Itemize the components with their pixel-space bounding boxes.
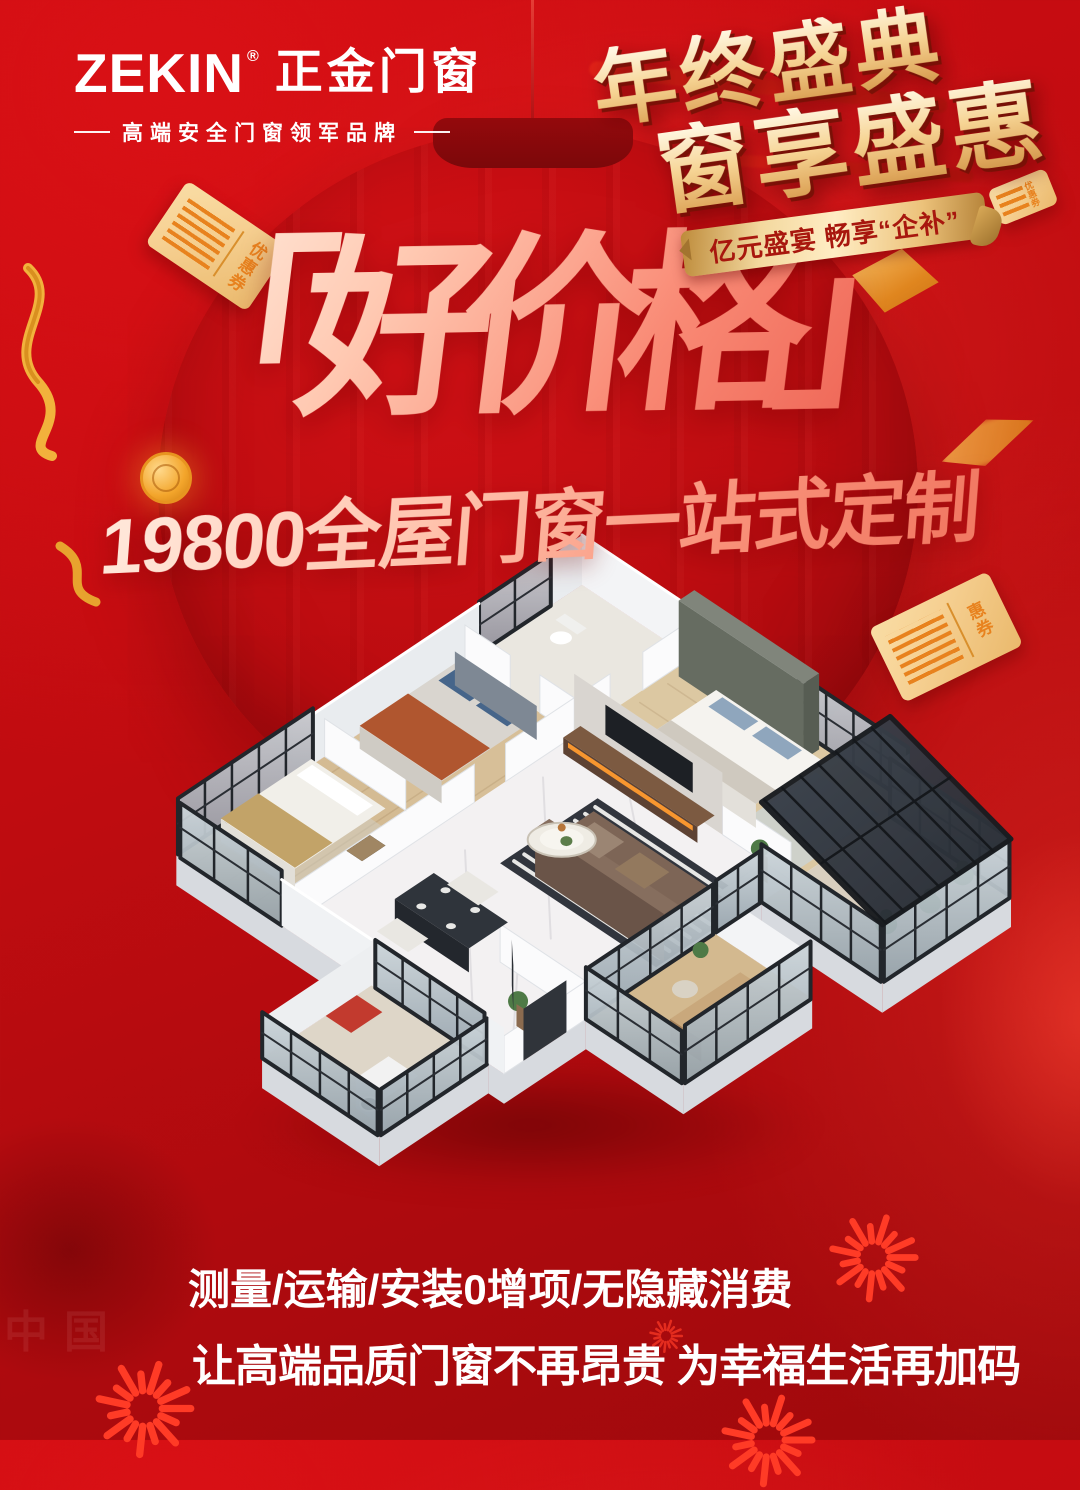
coupon-ticket-right: 惠券: [869, 571, 1024, 703]
offer-line: 19800全屋门窗一站式定制: [97, 446, 984, 597]
footer-line2: 让高端品质门窗不再昂贵 为幸福生活再加码: [192, 1330, 1020, 1394]
red-brush-stroke-icon: [589, 60, 949, 114]
barcode-stripes-icon: [161, 197, 236, 270]
coupon-left-label: 优惠券: [220, 235, 273, 296]
coupon-ticket-left: 优惠券: [145, 180, 289, 311]
brand-tagline: 高端安全门窗领军品牌: [122, 117, 402, 147]
festival-title-block: 年终盛典 窗享盛惠 亿元盛宴 畅享“企补”: [587, 0, 1060, 288]
barcode-stripes-icon: [885, 610, 963, 685]
gold-ribbon-banner: 亿元盛宴 畅享“企补”: [680, 192, 989, 278]
floorplan-shadow: [150, 1040, 910, 1210]
watermark-text: 中国: [4, 1296, 124, 1360]
floorplan-illustration: [0, 0, 1080, 1440]
brand-logo: ZEKIN ® 正金门窗 高端安全门窗领军品牌: [74, 46, 483, 147]
gold-streamer-icon: [0, 250, 180, 610]
footer-line1: 测量/运输/安装0增项/无隐藏消费: [188, 1256, 792, 1317]
ribbon-text: 亿元盛宴 畅享“企补”: [707, 200, 962, 270]
tagline-dash-right: [414, 131, 450, 133]
coupon-right-label: 惠券: [960, 598, 999, 643]
barcode-stripes-icon: [995, 185, 1030, 217]
gold-confetti-blur-icon: [934, 406, 1043, 479]
brand-name-cn: 正金门窗: [275, 49, 483, 97]
brand-tagline-row: 高端安全门窗领军品牌: [74, 117, 483, 147]
festival-title-line2: 窗享盛惠: [651, 73, 1052, 221]
gold-coin-icon: [140, 452, 192, 504]
registered-mark: ®: [247, 48, 259, 66]
lantern-backdrop: [158, 128, 918, 848]
lantern-cap: [433, 118, 633, 168]
firework-burst-icon: [648, 1318, 684, 1354]
price-headline: 「好价格」: [129, 217, 951, 439]
festival-title-line1: 年终盛典: [587, 0, 1038, 133]
brand-name-en: ZEKIN: [74, 46, 244, 101]
firework-burst-icon: [718, 1390, 818, 1490]
tagline-dash-left: [74, 131, 110, 133]
lantern-string: [531, 0, 534, 132]
coupon-small-label: 优惠券: [1021, 178, 1043, 208]
firework-burst-icon: [826, 1210, 921, 1305]
poster-canvas: { "poster": { "brand": { "name_en": "ZEK…: [0, 0, 1080, 1440]
red-glow-right: [880, 760, 1080, 1280]
coupon-ticket-small: 优惠券: [987, 168, 1059, 226]
gold-kite-confetti-icon: [846, 240, 944, 322]
firework-burst-icon: [92, 1356, 197, 1461]
red-brush-stroke-icon: [674, 150, 974, 183]
shadow-glow-bottom-left: [0, 1060, 280, 1440]
